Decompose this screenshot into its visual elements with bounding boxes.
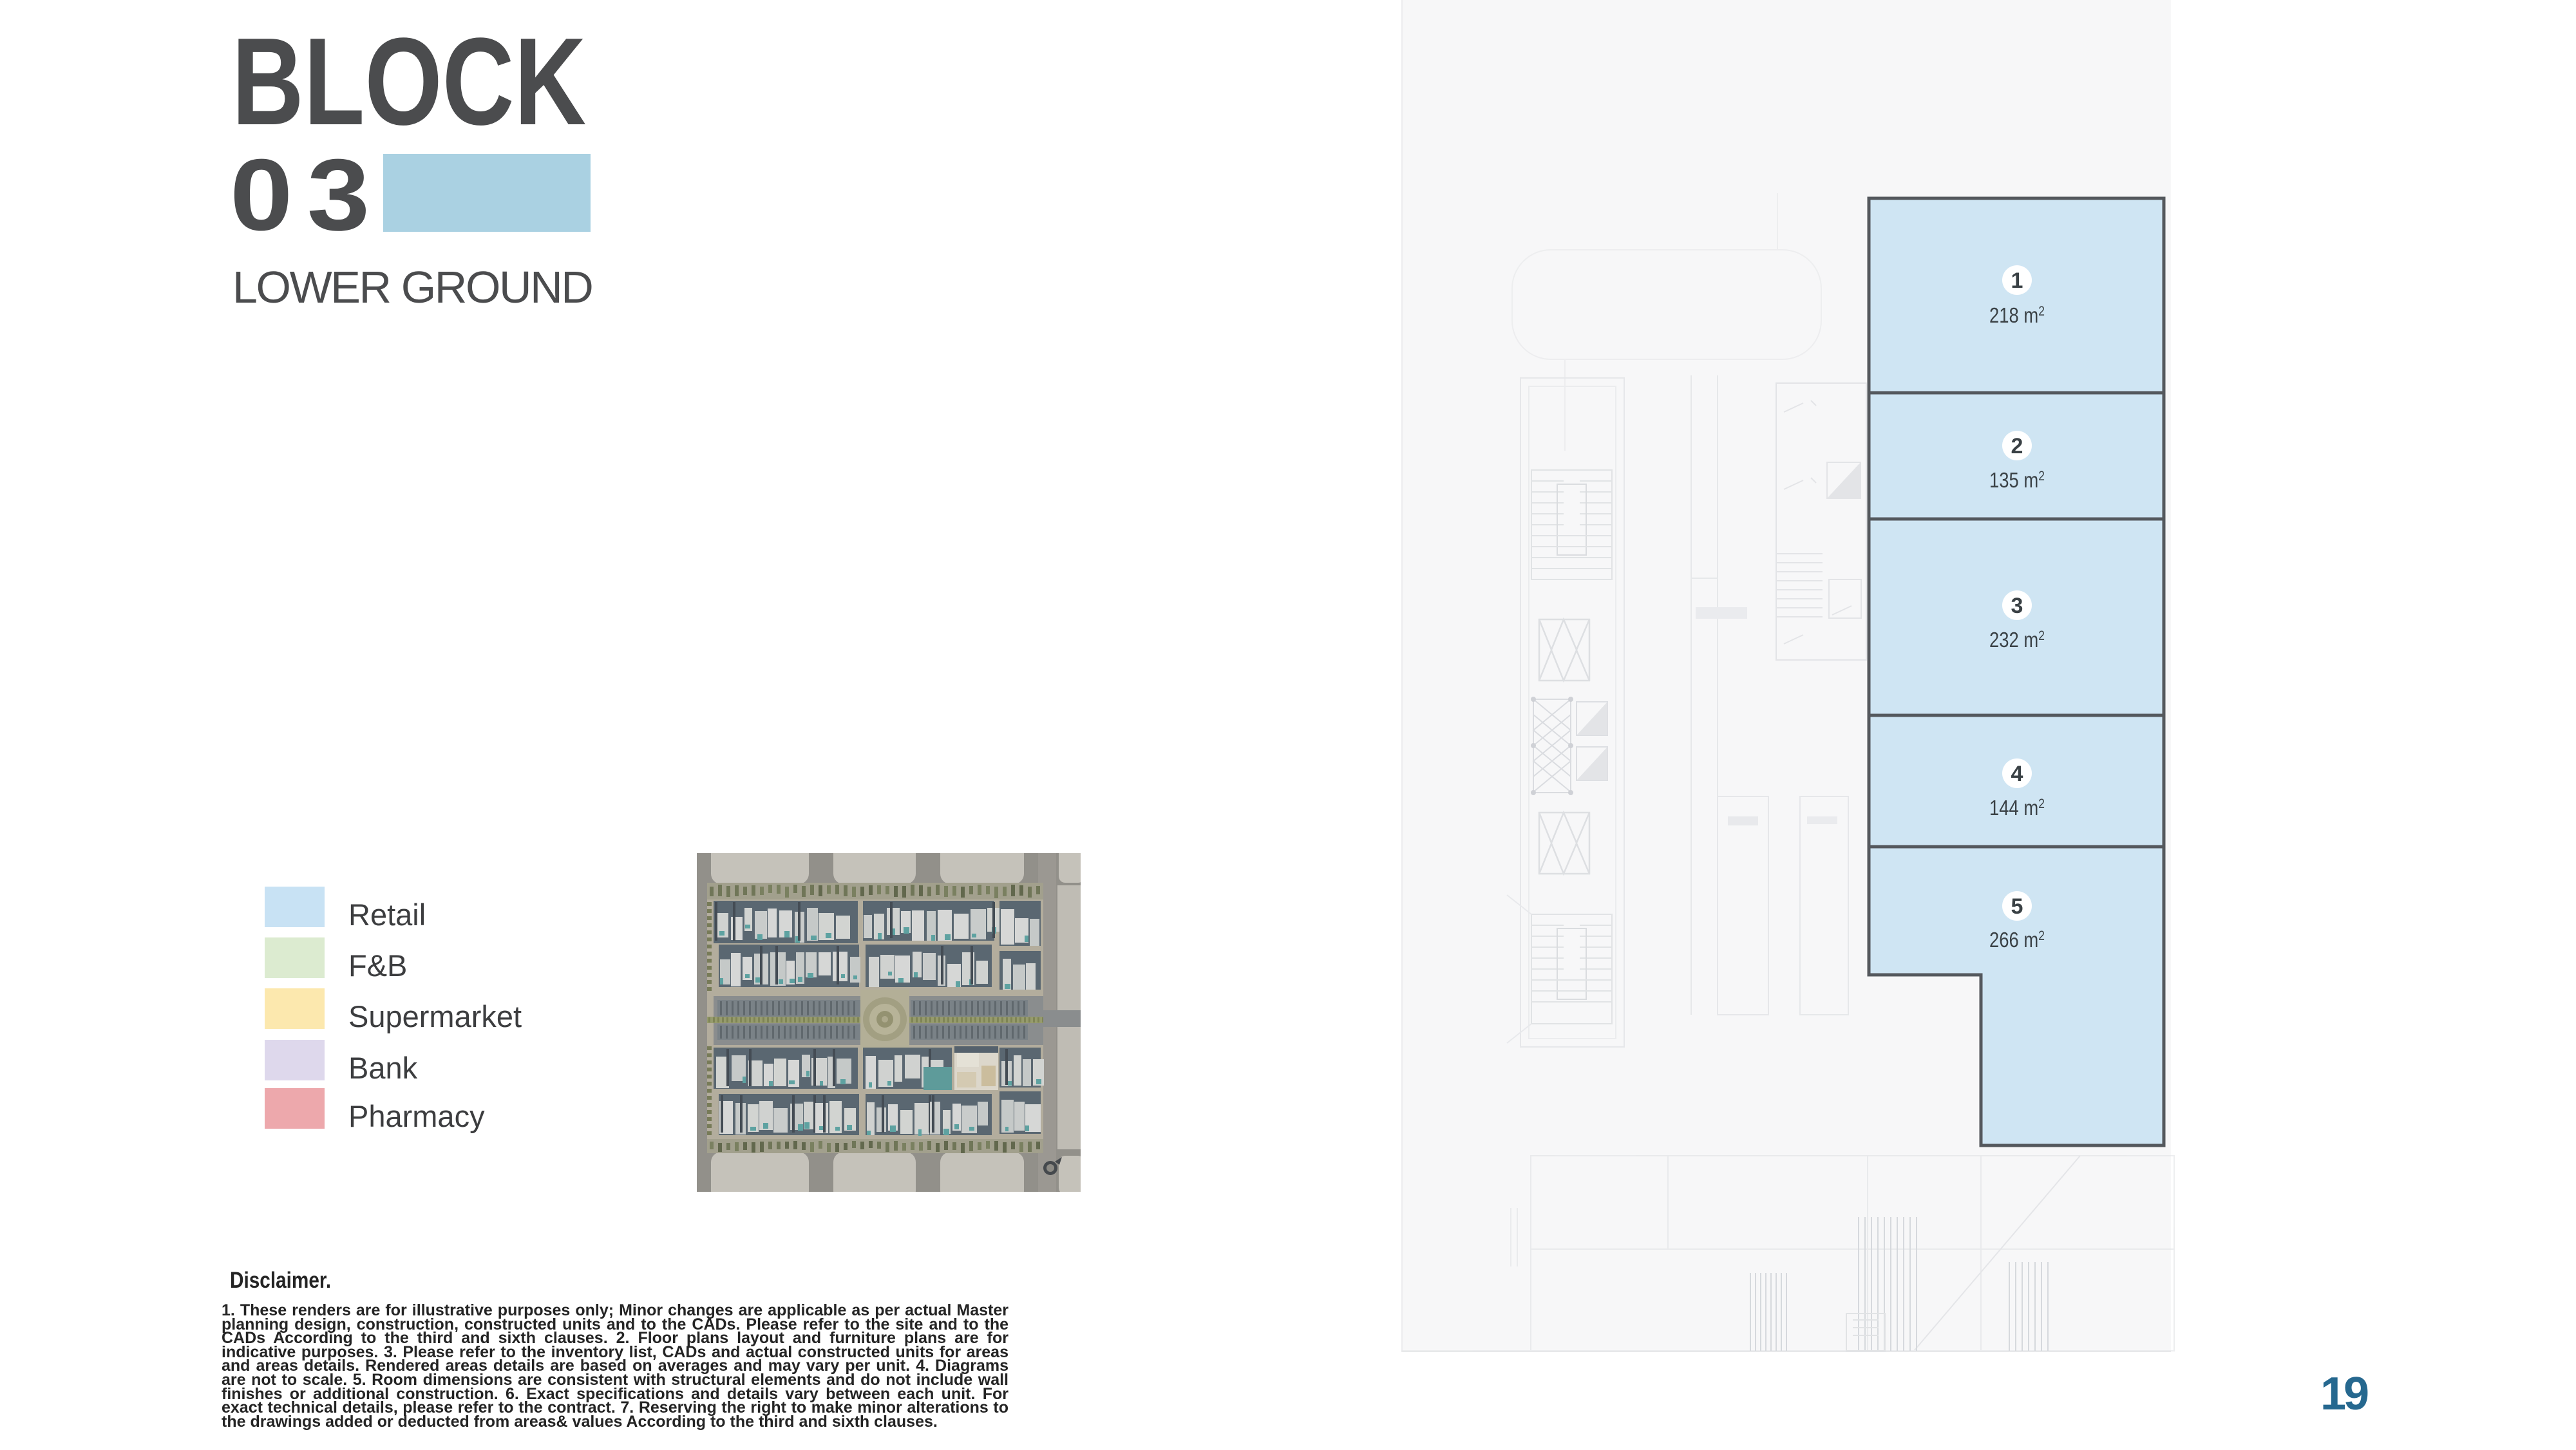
svg-text:2: 2 [2011, 434, 2023, 458]
svg-text:266 m2: 266 m2 [1989, 928, 2045, 952]
svg-text:232 m2: 232 m2 [1989, 628, 2045, 652]
svg-text:1: 1 [2011, 268, 2023, 293]
svg-text:218 m2: 218 m2 [1989, 303, 2045, 327]
svg-text:144 m2: 144 m2 [1989, 796, 2045, 820]
svg-text:4: 4 [2011, 762, 2023, 786]
svg-text:135 m2: 135 m2 [1989, 468, 2045, 492]
svg-text:5: 5 [2011, 894, 2023, 919]
svg-text:3: 3 [2011, 594, 2023, 618]
